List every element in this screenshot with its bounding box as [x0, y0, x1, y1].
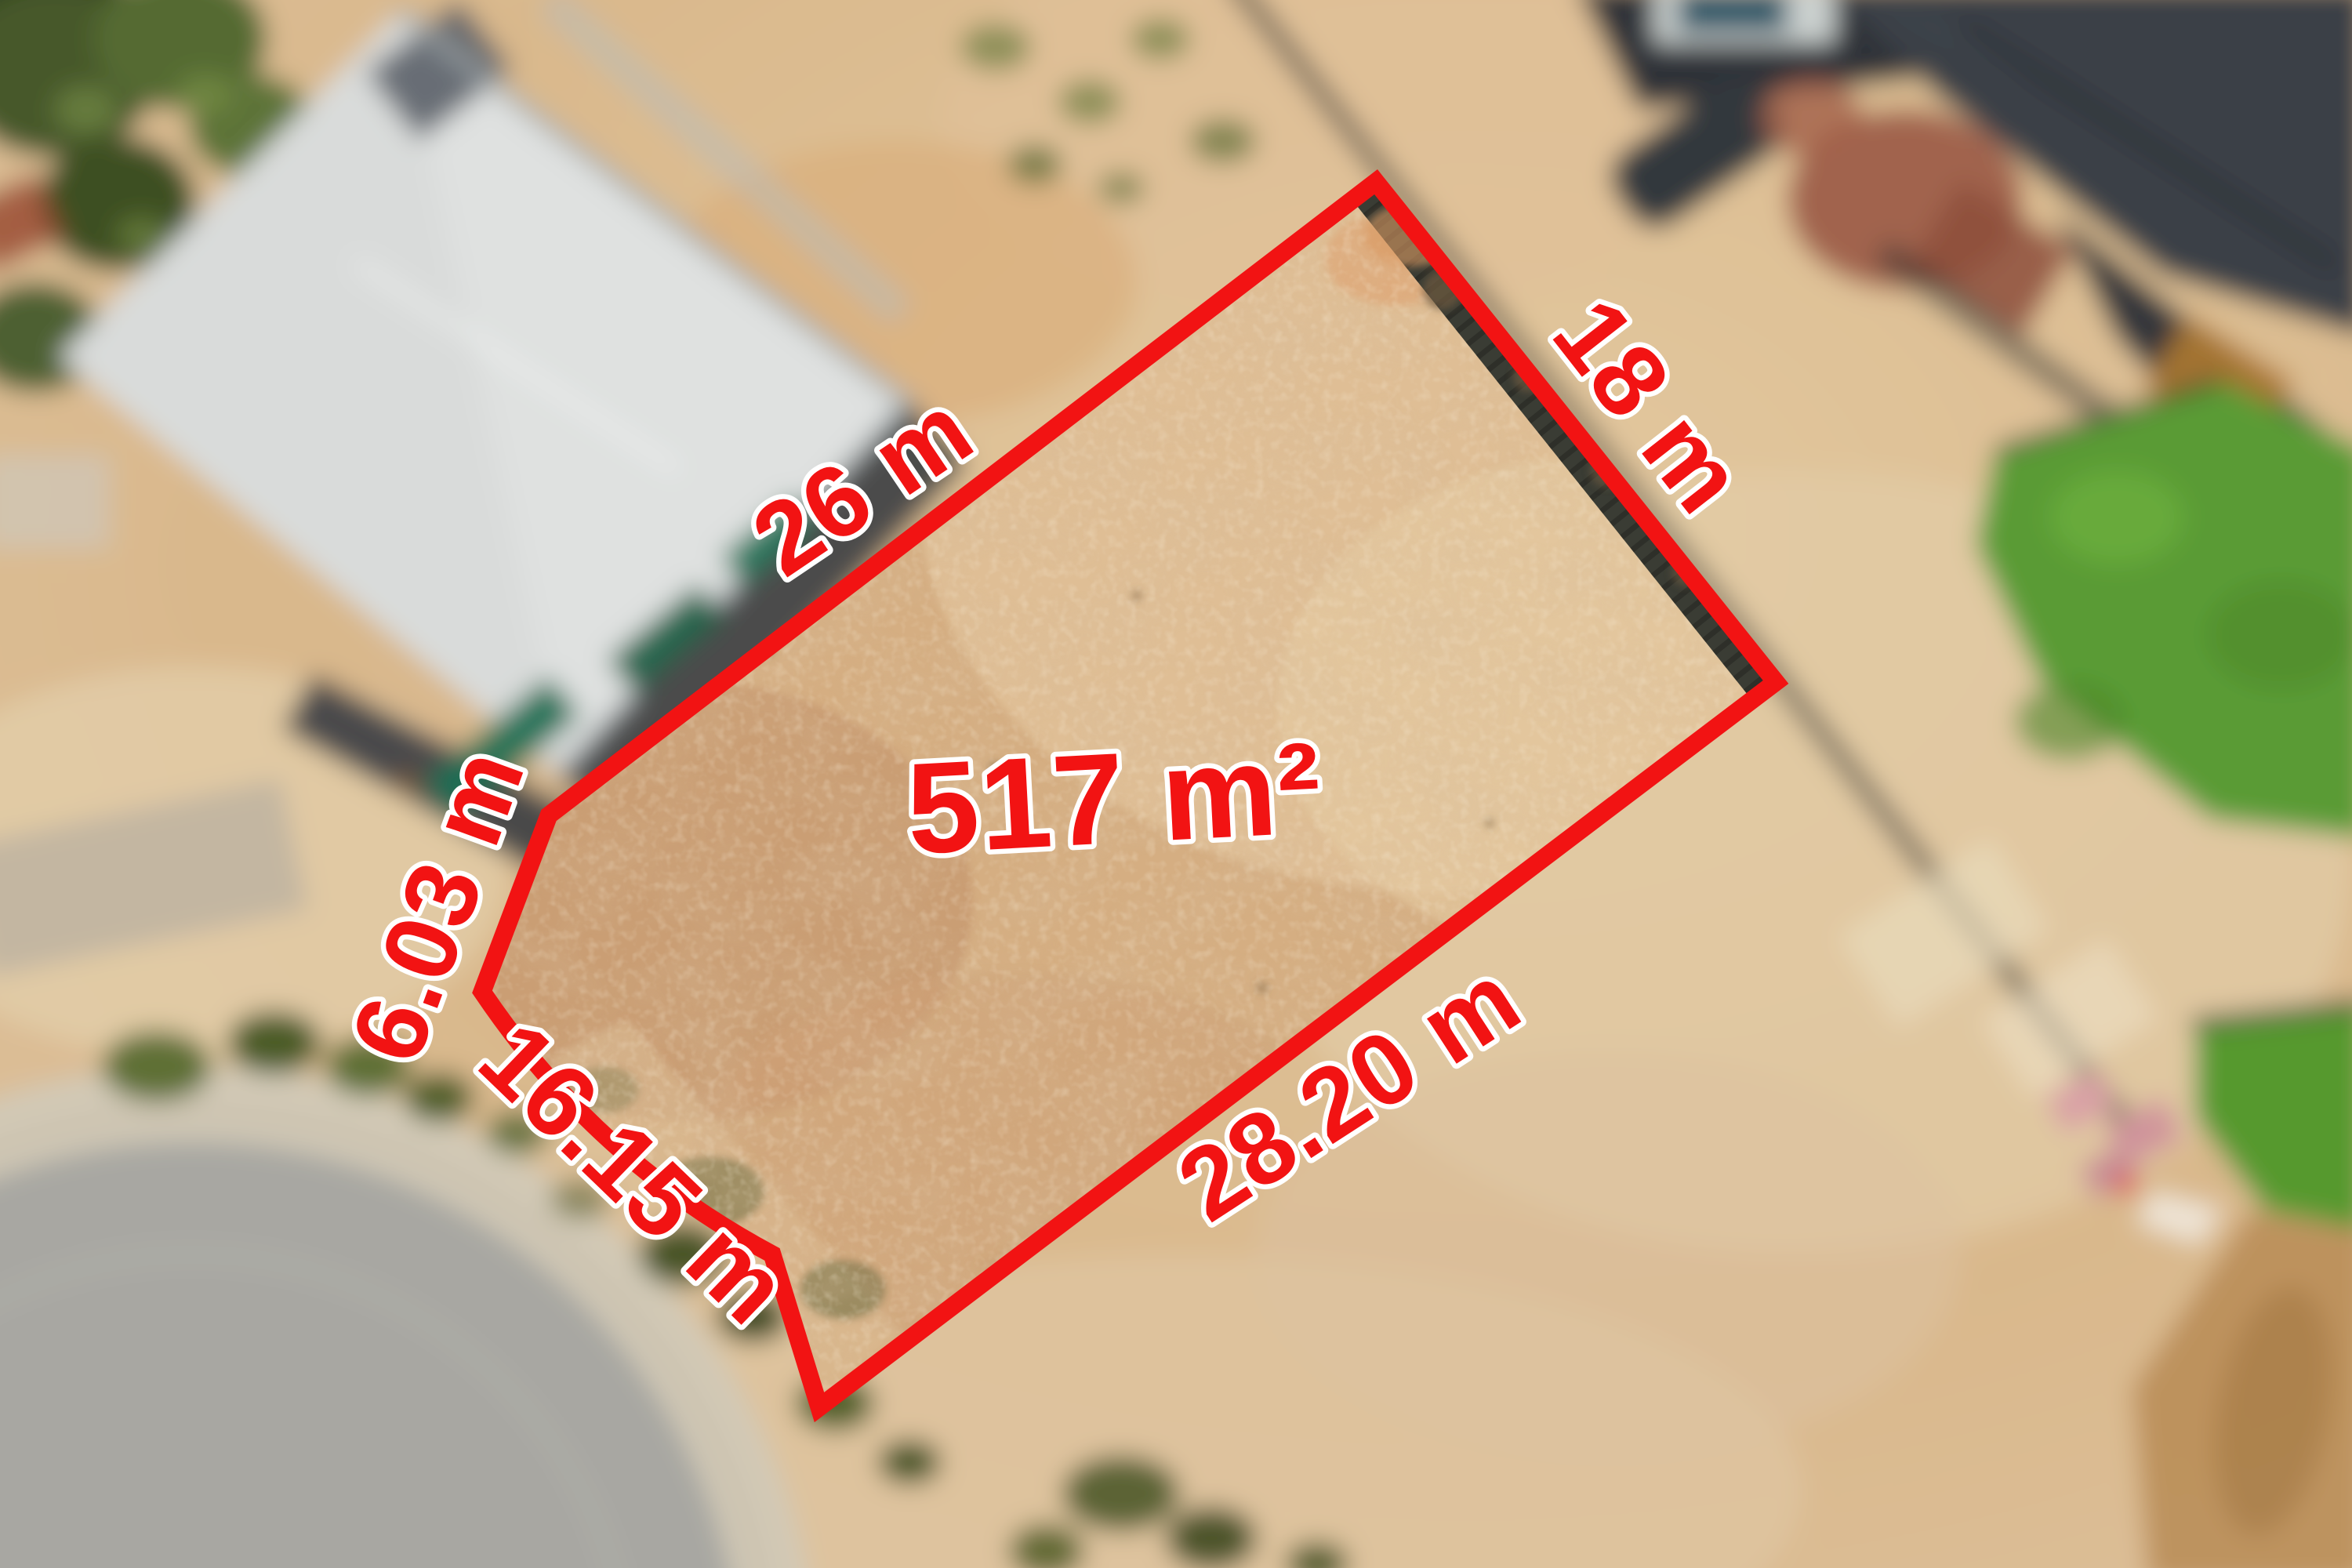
aerial-lot-photo: 26 m 18 m 6.03 m 16.15 m 28.20 m 517 m²: [0, 0, 2352, 1568]
swimming-pool: [1678, 0, 1788, 31]
aerial-photo-canvas: 26 m 18 m 6.03 m 16.15 m 28.20 m 517 m²: [0, 0, 2352, 1568]
area-label: 517 m²: [903, 715, 1325, 880]
